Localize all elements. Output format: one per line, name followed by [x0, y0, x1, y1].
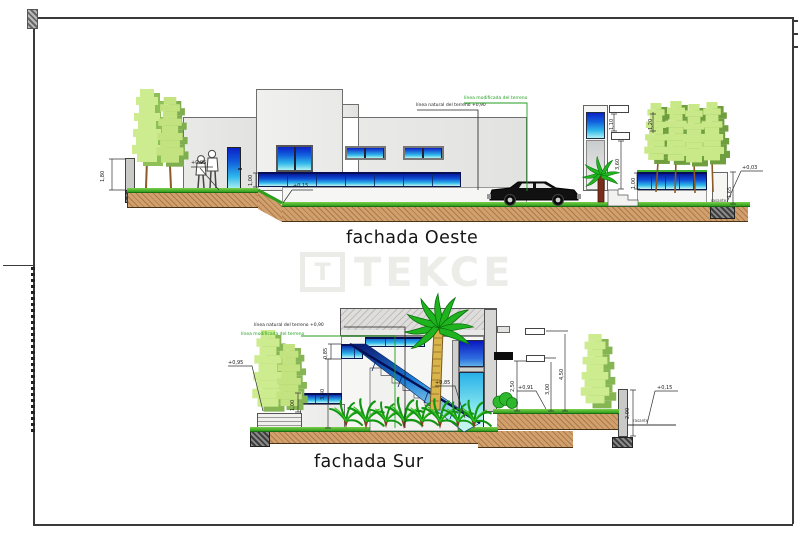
- sur-dimension-lines: [228, 331, 678, 436]
- oeste-terrain-lines: [258, 103, 527, 203]
- dimension-lines-overlay: [0, 0, 800, 533]
- drawing-sheet: T TEKCE: [0, 0, 800, 533]
- oeste-dimension-lines: [109, 112, 763, 206]
- sur-terrain-lines: [301, 327, 405, 428]
